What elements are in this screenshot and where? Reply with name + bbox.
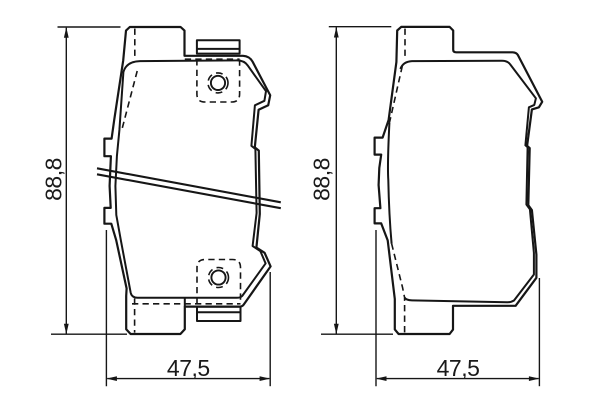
svg-text:88,8: 88,8 (41, 158, 67, 201)
svg-text:47,5: 47,5 (167, 355, 210, 381)
svg-text:47,5: 47,5 (437, 355, 480, 381)
svg-text:88,8: 88,8 (308, 158, 334, 201)
